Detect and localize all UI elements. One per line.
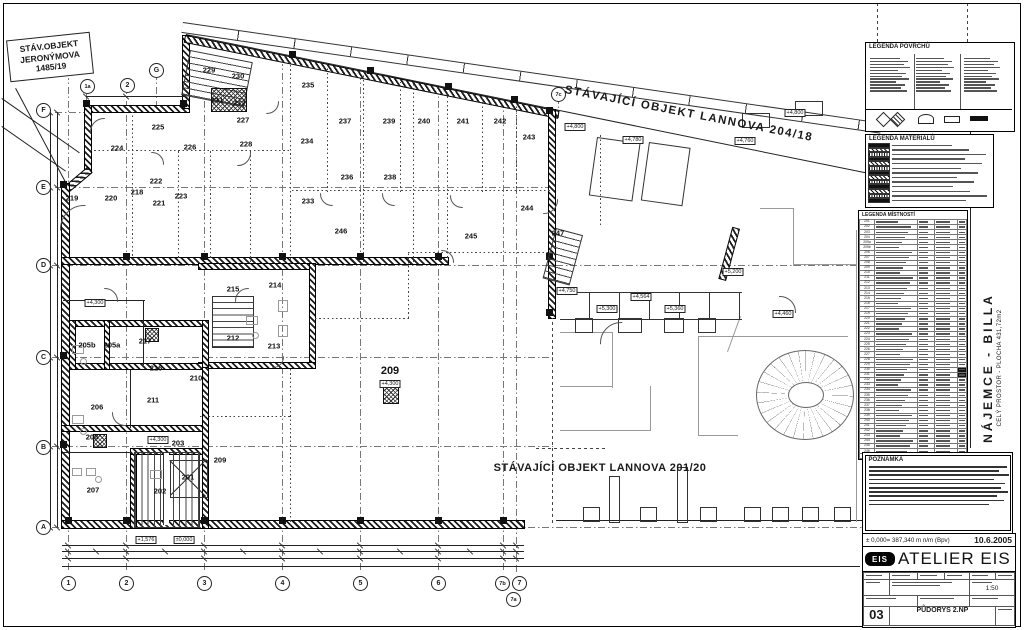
grid-axis-line <box>503 100 504 570</box>
neighbour-wall <box>793 208 794 266</box>
lease-boundary-dashed <box>552 318 553 523</box>
wall-hatched <box>549 110 555 318</box>
room-label-214: 214 <box>269 281 282 290</box>
room-label-230: 230 <box>232 72 245 81</box>
drawing-scale: 1:50 <box>972 585 1012 592</box>
pilaster <box>640 507 657 522</box>
neighbour-room <box>641 142 691 206</box>
wall-thin <box>62 551 524 552</box>
elevation-tag: +4,800 <box>785 109 806 117</box>
column <box>180 100 187 107</box>
facade-recess <box>575 318 593 333</box>
partition-dotted <box>516 104 517 192</box>
wall-hatched <box>85 106 189 112</box>
room-label-224: 224 <box>111 144 124 153</box>
grid-marker-A: A <box>36 520 51 535</box>
elevation-tag: +1,576 <box>136 536 157 544</box>
room-label-226: 226 <box>184 143 197 152</box>
fixture-round <box>252 332 259 339</box>
elevation-tag: +4,300 <box>85 299 106 307</box>
room-label-246: 246 <box>335 227 348 236</box>
legend-materials-row <box>866 198 993 203</box>
facade-recess <box>698 318 716 333</box>
wall-thin <box>130 370 131 428</box>
fixture <box>72 415 84 424</box>
legend-rooms: LEGENDA MÍSTNOSTÍ 201202203204205a205b20… <box>858 210 968 460</box>
room-label-241: 241 <box>457 117 470 126</box>
column <box>500 517 507 524</box>
partition-dotted <box>327 68 328 192</box>
grid-marker-3: 3 <box>197 576 212 591</box>
wall-hatched <box>85 106 91 172</box>
neighbour-room <box>589 137 641 202</box>
neighbour-wall <box>560 386 612 387</box>
column <box>546 309 553 316</box>
elevation-tag: +4,300 <box>380 380 401 388</box>
grid-marker-B: B <box>36 440 51 455</box>
room-label-217: 217 <box>139 337 152 346</box>
legend-materials: LEGENDA MATERIÁLŮ <box>865 134 994 208</box>
studio-logo: EIS <box>865 552 895 566</box>
legend-surfaces-column <box>964 56 1008 93</box>
door-arc <box>90 118 118 146</box>
grid-marker-6: 6 <box>431 576 446 591</box>
grid-axis-line <box>55 112 188 113</box>
room-label-209: 209 <box>214 456 227 465</box>
drawing-sheet: 1a2G7cFEDCBA1234567b77a21922021822222122… <box>0 0 1024 630</box>
room-label-223: 223 <box>175 192 188 201</box>
tenant-area: CELÝ PROSTOR - PLOCHA 431,72m2 <box>997 293 1003 443</box>
grid-marker-2: 2 <box>119 576 134 591</box>
elevation-tag: +4,750 <box>557 287 578 295</box>
tenant-name: NÁJEMCE - BILLA <box>981 293 995 443</box>
legend-rooms-table: 201202203204205a205b20620720820921021121… <box>859 219 967 459</box>
room-label-203: 203 <box>172 439 185 448</box>
room-label-243: 243 <box>523 133 536 142</box>
room-label-215: 215 <box>227 285 240 294</box>
pilaster <box>583 507 600 522</box>
wall-hatched <box>199 363 315 368</box>
room-label-218: 218 <box>131 188 144 197</box>
column <box>60 181 67 188</box>
pilaster <box>744 507 761 522</box>
label-jeronymova: STÁV.OBJEKT JERONÝMOVA 1485/19 <box>6 32 94 82</box>
room-label-235: 235 <box>302 81 315 90</box>
room-label-233: 233 <box>302 197 315 206</box>
grid-marker-5: 5 <box>353 576 368 591</box>
column <box>546 107 553 114</box>
room-label-208: 208 <box>86 433 99 442</box>
grid-marker-7a: 7a <box>506 592 521 607</box>
legend-rooms-title: LEGENDA MÍSTNOSTÍ <box>859 211 967 219</box>
room-label-240: 240 <box>418 117 431 126</box>
column <box>367 67 374 74</box>
elevation-tag: +4,300 <box>148 436 169 444</box>
room-label-202: 202 <box>154 487 167 496</box>
elevation-tag: +5,360 <box>665 305 686 313</box>
elevation-tag: +5,200 <box>723 268 744 276</box>
legend-surfaces-column <box>870 56 914 93</box>
wall-thin <box>50 112 51 527</box>
door-arc <box>255 90 279 114</box>
wall-thin <box>63 452 131 453</box>
room-label-221: 221 <box>153 199 166 208</box>
room-label-205a: 205a <box>104 341 121 350</box>
room-label-210: 210 <box>190 374 203 383</box>
room-label-237: 237 <box>339 117 352 126</box>
door-arc <box>140 152 164 176</box>
elevation-tag: +4,460 <box>773 310 794 318</box>
grid-marker-4: 4 <box>275 576 290 591</box>
room-label-220: 220 <box>105 194 118 203</box>
fixture <box>278 325 288 337</box>
column <box>201 517 208 524</box>
room-label-216: 216 <box>150 364 163 373</box>
legend-surfaces-title: LEGENDA POVRCHŮ <box>866 43 1014 51</box>
partition-dotted <box>290 368 291 526</box>
column <box>289 51 296 58</box>
room-label-242: 242 <box>494 117 507 126</box>
wall-thin <box>62 566 860 567</box>
neighbour-wall <box>698 435 738 436</box>
fixture <box>150 470 162 479</box>
elevation-tag: ±0,000 <box>174 536 195 544</box>
column <box>65 517 72 524</box>
grid-axis-line <box>52 357 553 358</box>
wall-thin <box>57 112 58 527</box>
column <box>435 517 442 524</box>
column <box>123 517 130 524</box>
grid-marker-G: G <box>149 63 164 78</box>
legend-surfaces: LEGENDA POVRCHŮ <box>865 42 1015 132</box>
neighbour-wall <box>856 230 857 522</box>
grid-marker-7b: 7b <box>495 576 510 591</box>
room-label-229: 229 <box>203 66 216 75</box>
column <box>60 352 67 359</box>
elevation-tag: +4,780 <box>623 136 644 144</box>
wall-hatched <box>203 321 208 369</box>
column <box>279 253 286 260</box>
partition-dotted <box>132 112 133 260</box>
room-label-222: 222 <box>150 177 163 186</box>
dashed-line <box>536 448 606 449</box>
partition-dotted <box>363 75 364 262</box>
fixture <box>246 316 258 325</box>
room-label-234: 234 <box>301 137 314 146</box>
drawing-date: 10.6.2005 <box>974 535 1012 545</box>
fixture <box>278 300 288 312</box>
room-label-228: 228 <box>240 140 253 149</box>
wall-thin <box>62 545 524 546</box>
label-lannova-201: STÁVAJÍCÍ OBJEKT LANNOVA 201/20 <box>494 462 707 474</box>
pilaster <box>772 507 789 522</box>
fold-mark <box>877 4 878 42</box>
column <box>445 83 452 90</box>
partition-dotted <box>315 318 410 319</box>
legend-surfaces-column <box>916 56 960 93</box>
legend-surfaces-symbols <box>866 109 1012 130</box>
grid-marker-7: 7 <box>512 576 527 591</box>
room-label-244: 244 <box>521 204 534 213</box>
facade-recess <box>664 318 684 333</box>
legend-materials-title: LEGENDA MATERIÁLŮ <box>866 135 993 143</box>
pilaster <box>802 507 819 522</box>
partition-dotted <box>408 252 409 318</box>
column <box>435 253 442 260</box>
notes-title: POZNÁMKA <box>866 456 1010 464</box>
partition-dotted <box>408 252 550 253</box>
grid-axis-line <box>360 72 361 570</box>
title-block-table: 1:50 03 PŮDORYS 2.NP <box>863 572 1015 626</box>
neighbour-wall <box>650 386 651 431</box>
wall-hatched <box>70 321 208 326</box>
room-label-206: 206 <box>91 403 104 412</box>
partition-dotted <box>200 416 290 417</box>
partition-dotted <box>400 82 401 192</box>
neighbour-wall <box>698 336 848 337</box>
wall-hatched <box>310 264 315 368</box>
room-label-236: 236 <box>341 173 354 182</box>
studio-name: ATELIER EIS <box>898 549 1011 569</box>
pilaster <box>700 507 717 522</box>
column <box>83 100 90 107</box>
fixture <box>72 468 82 476</box>
door-arc <box>320 182 344 206</box>
room-label-219: 219 <box>66 194 79 203</box>
room-label-201: 201 <box>182 473 195 482</box>
spiral-stair-core <box>788 382 824 408</box>
column <box>201 253 208 260</box>
fold-mark <box>967 4 968 42</box>
grid-marker-2: 2 <box>120 78 135 93</box>
wall-thin <box>62 558 524 559</box>
wall-hatched <box>199 264 315 269</box>
drawing-number: 03 <box>864 606 890 625</box>
chimney <box>677 467 688 523</box>
grid-marker-C: C <box>36 350 51 365</box>
partition-dotted <box>178 150 179 262</box>
column <box>123 253 130 260</box>
fixture <box>86 468 96 476</box>
neighbour-wall <box>698 336 699 436</box>
column <box>357 517 364 524</box>
partition-dotted <box>210 150 211 262</box>
wall-thin <box>143 300 144 365</box>
room-label-213: 213 <box>268 342 281 351</box>
room-label-232: 232 <box>233 99 246 108</box>
room-label-209: 209 <box>381 365 399 377</box>
room-label-245: 245 <box>465 232 478 241</box>
elevation-tag: +4,564 <box>631 293 652 301</box>
partition-dotted <box>413 84 414 262</box>
pilaster <box>834 507 851 522</box>
room-label-227: 227 <box>237 116 250 125</box>
grid-axis-line <box>52 265 858 266</box>
grid-axis-line <box>126 93 127 570</box>
room-label-212: 212 <box>227 334 240 343</box>
drawing-name: PŮDORYS 2.NP <box>889 606 995 625</box>
elevation-tag: +4,800 <box>565 123 586 131</box>
room-label-239: 239 <box>383 117 396 126</box>
grid-marker-E: E <box>36 180 51 195</box>
column <box>511 96 518 103</box>
partition-dotted <box>290 62 291 264</box>
door-arc <box>382 182 406 206</box>
partition-dotted <box>482 98 483 192</box>
wall-thin <box>86 96 186 97</box>
wall-hatched <box>203 368 208 528</box>
wall-hatched <box>70 364 208 369</box>
neighbour-wall <box>760 208 794 209</box>
neighbour-wall <box>793 264 857 265</box>
partition-dotted <box>447 92 448 262</box>
grid-marker-D: D <box>36 258 51 273</box>
grid-axis-line <box>52 446 553 447</box>
room-label-238: 238 <box>384 173 397 182</box>
grid-axis-line <box>156 78 157 108</box>
title-block: ± 0,000= 387,340 m n/m (Bpv) 10.6.2005 E… <box>862 533 1016 628</box>
notes-lines <box>866 466 1010 505</box>
column <box>357 253 364 260</box>
room-label-231: 231 <box>211 96 224 105</box>
label-tenant-billa: NÁJEMCE - BILLA CELÝ PROSTOR - PLOCHA 43… <box>981 293 1003 443</box>
datum-elevation-note: ± 0,000= 387,340 m n/m (Bpv) <box>866 537 950 544</box>
fixture-round <box>95 476 102 483</box>
neighbour-wall <box>560 430 650 431</box>
chimney <box>609 476 620 523</box>
room-label-207: 207 <box>87 486 100 495</box>
grid-axis-line <box>438 86 439 570</box>
room-label-225: 225 <box>152 123 165 132</box>
neighbour-facade <box>181 22 881 134</box>
grid-marker-1: 1 <box>61 576 76 591</box>
column <box>60 441 67 448</box>
fixture-round <box>80 358 87 365</box>
door-arc <box>112 400 138 426</box>
room-label-211: 211 <box>147 396 159 405</box>
room-label-205b: 205b <box>78 341 95 350</box>
partition-dotted <box>250 150 251 262</box>
grid-marker-7c: 7c <box>551 87 566 102</box>
grid-axis-line <box>282 64 283 570</box>
grid-marker-1a: 1a <box>80 79 95 94</box>
room-label-247: 247 <box>552 229 565 238</box>
duct-shaft <box>383 386 399 404</box>
notes-box: POZNÁMKA <box>862 452 1013 534</box>
column <box>279 517 286 524</box>
elevation-tag: +4,760 <box>735 137 756 145</box>
partition-dotted <box>292 190 552 191</box>
elevation-tag: +5,300 <box>597 305 618 313</box>
neighbour-wall <box>727 316 741 352</box>
grid-marker-F: F <box>36 103 51 118</box>
